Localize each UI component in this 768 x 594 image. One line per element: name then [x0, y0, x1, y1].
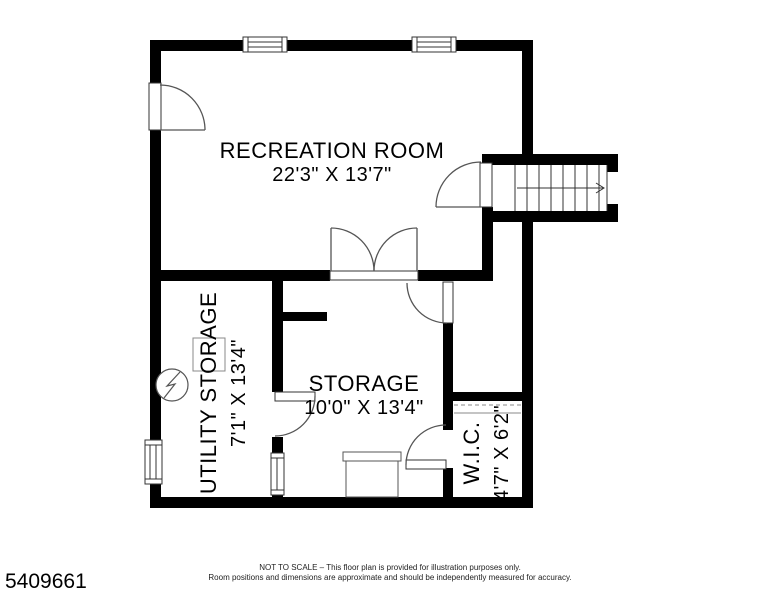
- room-label-utility-storage: UTILITY STORAGE 7'1" X 13'4": [193, 292, 255, 494]
- wall: [272, 281, 283, 392]
- disclaimer-line-2: Room positions and dimensions are approx…: [208, 573, 571, 583]
- staircase-walls: [482, 154, 618, 278]
- floor-plan-page: RECREATION ROOM 22'3" X 13'7" STORAGE 10…: [0, 0, 768, 594]
- door-icon: [436, 162, 492, 207]
- door-icon: [406, 425, 446, 469]
- wall: [443, 270, 493, 281]
- floor-plan-drawing: [0, 0, 768, 594]
- room-label-storage: STORAGE 10'0" X 13'4": [304, 372, 424, 420]
- mls-number: 5409661: [5, 570, 87, 594]
- electrical-panel-icon: [156, 369, 188, 401]
- wall: [482, 222, 493, 278]
- wall: [272, 495, 283, 508]
- wall: [150, 270, 330, 281]
- wall: [150, 40, 161, 83]
- double-door-icon: [330, 228, 418, 280]
- wall: [443, 468, 453, 508]
- room-name: UTILITY STORAGE: [193, 292, 224, 494]
- wall: [522, 40, 533, 155]
- room-dims: 22'3" X 13'7": [220, 163, 445, 187]
- wall-stub: [283, 312, 327, 321]
- wall: [453, 392, 522, 401]
- window-icon: [271, 453, 284, 495]
- room-dims: 4'7" X 6'2": [487, 405, 518, 501]
- wall: [482, 207, 493, 222]
- wall: [150, 40, 533, 51]
- wall: [482, 154, 493, 163]
- staircase: [515, 165, 607, 211]
- stair-direction-arrow-icon: [517, 183, 604, 193]
- room-dims: 10'0" X 13'4": [304, 396, 424, 420]
- window-icon: [243, 37, 287, 52]
- disclaimer-line-1: NOT TO SCALE – This floor plan is provid…: [259, 563, 521, 573]
- laundry-tub-icon: [343, 452, 401, 497]
- room-name: RECREATION ROOM: [220, 139, 445, 163]
- wall: [482, 154, 618, 165]
- room-name: STORAGE: [304, 372, 424, 396]
- window-icon: [145, 440, 162, 484]
- wall: [607, 154, 618, 172]
- wall: [522, 220, 533, 508]
- wall: [272, 437, 283, 453]
- door-icon: [407, 282, 453, 323]
- wall: [443, 323, 453, 430]
- room-label-recreation: RECREATION ROOM 22'3" X 13'7": [220, 139, 445, 187]
- room-label-wic: W.I.C. 4'7" X 6'2": [456, 405, 518, 501]
- wall: [607, 204, 618, 222]
- door-icon: [149, 83, 205, 130]
- room-name: W.I.C.: [456, 405, 487, 501]
- room-dims: 7'1" X 13'4": [224, 292, 255, 494]
- window-icon: [412, 37, 456, 52]
- wall: [482, 211, 618, 222]
